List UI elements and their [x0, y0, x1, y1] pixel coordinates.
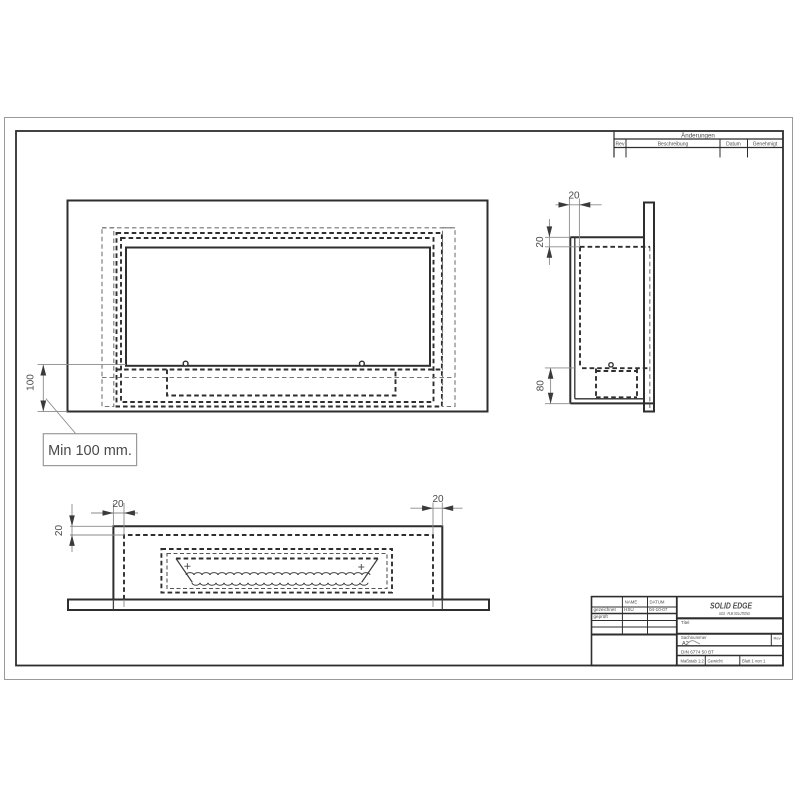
- svg-text:geprüft: geprüft: [594, 614, 609, 619]
- svg-text:gezeichnet: gezeichnet: [594, 607, 617, 612]
- svg-text:Genehmigt: Genehmigt: [753, 142, 778, 148]
- svg-text:Rev: Rev: [616, 142, 625, 148]
- svg-text:20: 20: [54, 525, 65, 537]
- svg-text:UGS - PLM SOLUTIONS: UGS - PLM SOLUTIONS: [719, 611, 750, 616]
- svg-text:SOLID EDGE: SOLID EDGE: [710, 601, 752, 611]
- svg-text:04-10-07: 04-10-07: [649, 607, 668, 612]
- svg-text:Maßstab 1:2: Maßstab 1:2: [681, 659, 705, 664]
- svg-text:Änderungen: Änderungen: [681, 132, 715, 139]
- svg-text:Gewicht: Gewicht: [708, 659, 724, 664]
- svg-text:Titel: Titel: [681, 620, 689, 625]
- svg-text:Beschreibung: Beschreibung: [658, 142, 689, 148]
- svg-text:20: 20: [432, 494, 444, 505]
- svg-text:HSU: HSU: [624, 607, 634, 612]
- svg-text:20: 20: [535, 236, 546, 248]
- svg-text:100: 100: [26, 374, 37, 391]
- svg-text:NAME: NAME: [625, 600, 638, 605]
- svg-text:DATUM: DATUM: [650, 600, 665, 605]
- svg-text:DIN 6774 50 BT: DIN 6774 50 BT: [681, 650, 714, 655]
- svg-text:20: 20: [112, 499, 124, 510]
- svg-text:Datum: Datum: [726, 142, 741, 148]
- svg-text:Min 100 mm.: Min 100 mm.: [48, 443, 132, 459]
- svg-text:Rev: Rev: [774, 636, 781, 641]
- svg-text:20: 20: [568, 190, 580, 201]
- svg-text:80: 80: [536, 380, 547, 392]
- svg-text:Sachnummer: Sachnummer: [681, 635, 707, 640]
- svg-text:Blatt 1 von 1: Blatt 1 von 1: [742, 659, 766, 664]
